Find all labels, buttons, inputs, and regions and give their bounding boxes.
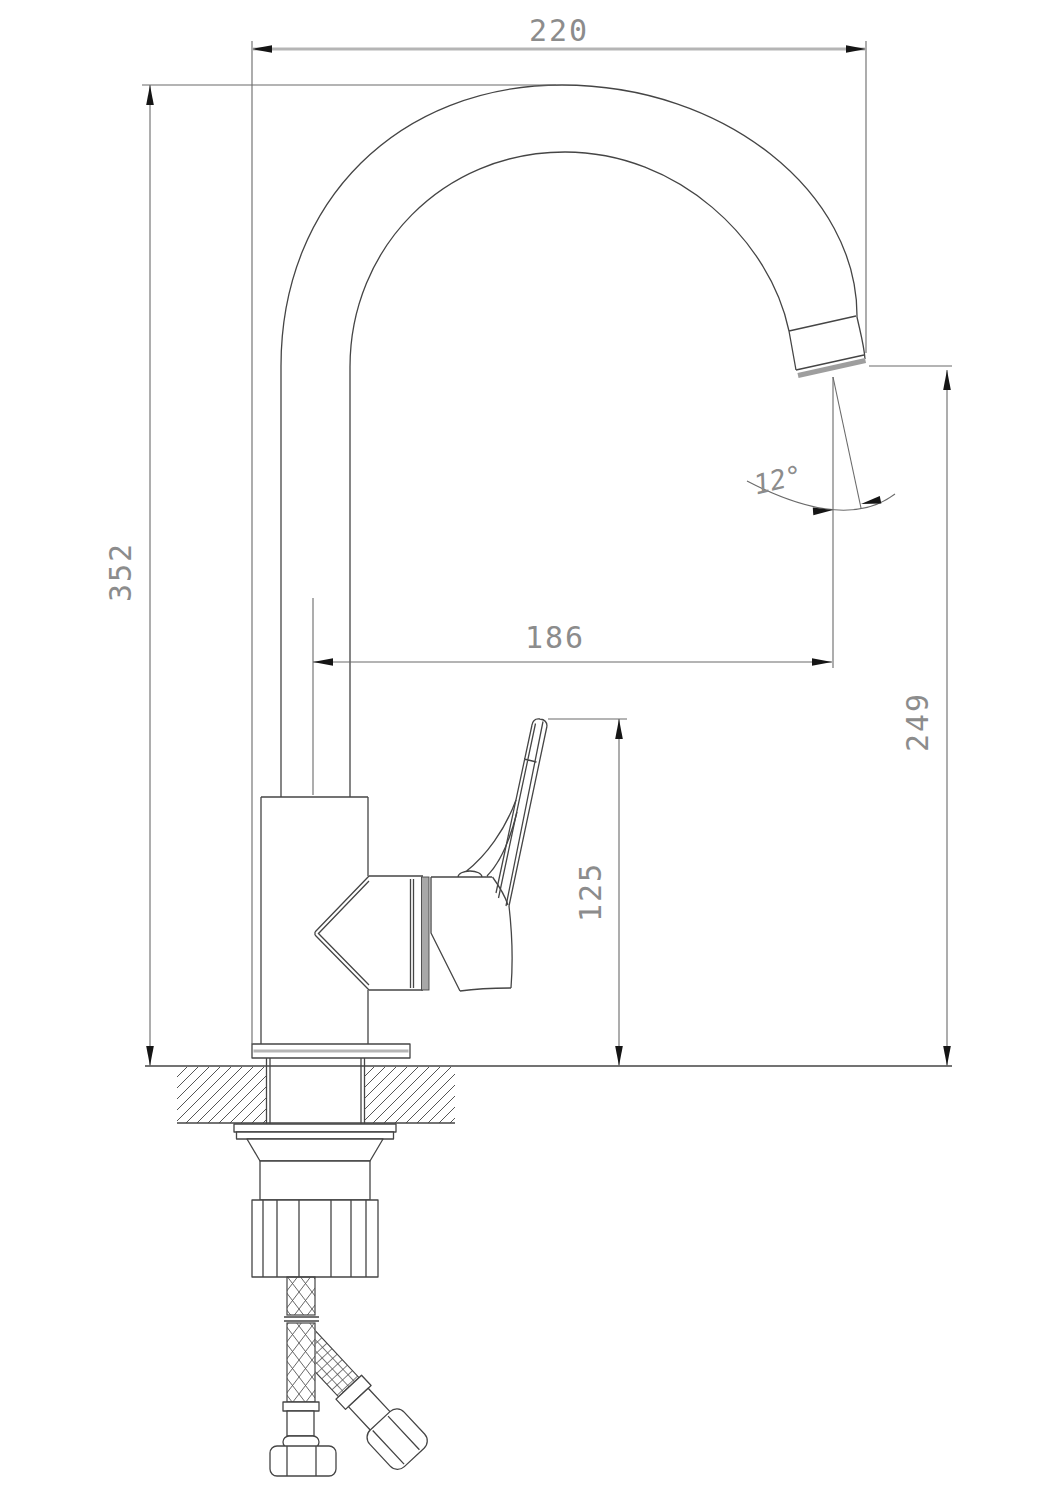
spout-inner-curve: [350, 152, 796, 797]
washer-plate: [234, 1124, 396, 1132]
dim-186-arrow-right: [812, 658, 832, 666]
dim-outlet-angle: 12°: [747, 377, 895, 668]
drawing-page: 220 352 186 249 125 12°: [0, 0, 1061, 1500]
dim-352-label: 352: [103, 542, 138, 602]
dim-overall-height: 352: [103, 85, 556, 1066]
dim-125-label: 125: [573, 862, 608, 922]
body-outline: [261, 797, 368, 1044]
dim-125-arrow-top: [615, 719, 623, 739]
braided-hose-lower: [287, 1323, 315, 1402]
valve-cone: [315, 876, 423, 990]
dim-186-arrow-left: [313, 658, 333, 666]
dim-overall-width: 220: [252, 13, 866, 1044]
faucet-handle: [431, 719, 547, 991]
faucet-outline: [252, 85, 866, 1124]
dim-125-arrow-bottom: [615, 1046, 623, 1066]
rubber-washer: [237, 1132, 394, 1139]
faucet-body: [261, 797, 429, 1044]
dim-249-arrow-bottom: [943, 1046, 951, 1066]
counter-hatch-right: [365, 1067, 456, 1123]
threaded-shank: [267, 1058, 365, 1124]
angle-ref-slant: [833, 377, 861, 508]
faucet-technical-drawing: 220 352 186 249 125 12°: [0, 0, 1061, 1500]
dim-handle-height: 125: [548, 719, 627, 1066]
hose-break-symbol: [284, 1317, 319, 1321]
dim-220-label: 220: [529, 13, 589, 48]
cartridge-collar: [422, 877, 430, 990]
dim-spout-reach: 186: [313, 598, 832, 795]
supply-hoses: [270, 1277, 431, 1476]
dim-186-label: 186: [525, 620, 585, 655]
braided-hose-upper: [287, 1277, 315, 1315]
hose-end-fitting: [270, 1402, 336, 1476]
aerator-seam: [789, 316, 856, 331]
cartridge-seam: [411, 879, 414, 988]
handle-housing: [431, 800, 517, 991]
dim-220-ext-lines: [252, 41, 866, 1044]
dim-352-arrow-top: [146, 85, 154, 105]
nut-shoulder: [247, 1139, 383, 1161]
spout-outer-curve: [281, 85, 865, 797]
dim-220-arrow-right: [846, 45, 866, 53]
handle-lever: [496, 719, 547, 906]
faucet-spout: [281, 85, 866, 797]
hose-ferrule: [283, 1402, 319, 1411]
dim-220-arrow-left: [252, 45, 272, 53]
dim-352-arrow-bottom: [146, 1046, 154, 1066]
dim-outlet-height: 249: [869, 366, 952, 1066]
hose-hex-nut: [270, 1446, 336, 1476]
counter-hatch-left: [177, 1067, 266, 1123]
mounting-nut: [252, 1200, 378, 1277]
mounting-hardware: [234, 1124, 396, 1277]
dim-249-arrow-top: [943, 370, 951, 390]
angle-label: 12°: [751, 459, 806, 500]
dim-249-label: 249: [900, 692, 935, 752]
hose-nipple: [287, 1411, 314, 1436]
nut-sleeve: [260, 1161, 370, 1200]
